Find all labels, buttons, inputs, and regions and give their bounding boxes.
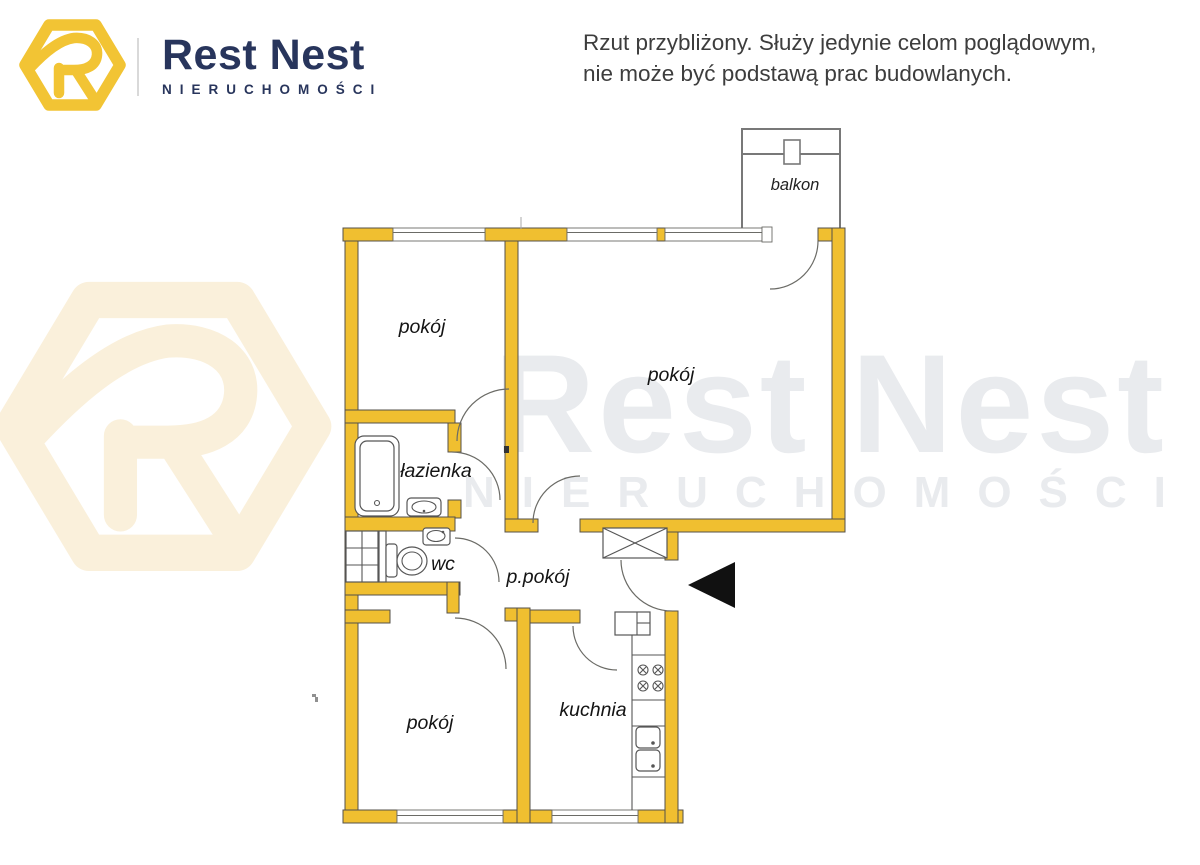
floor-plan-drawing: pokój pokój łazienka wc p.pokój kuchnia … — [0, 0, 1200, 865]
restnest-logo-icon — [0, 0, 160, 130]
bathtub-icon — [355, 436, 399, 516]
room-labels: pokój pokój łazienka wc p.pokój kuchnia … — [398, 176, 820, 734]
kitchen-counter — [632, 635, 665, 810]
wardrobe-icon — [603, 528, 667, 558]
disclaimer-text: Rzut przybliżony. Służy jedynie celom po… — [583, 27, 1193, 89]
bathroom-sink-icon — [407, 498, 441, 516]
room-label-hallway: p.pokój — [506, 566, 571, 588]
kitchen-sink-icon — [636, 727, 660, 771]
stove-icon — [638, 665, 663, 691]
room-label-kitchen: kuchnia — [559, 699, 626, 721]
room-label-balcony: balkon — [771, 176, 820, 194]
fridge-icon — [615, 612, 650, 635]
wc-sink-icon — [423, 528, 450, 545]
toilet-icon — [386, 544, 427, 577]
entrance-arrow-icon — [688, 562, 735, 608]
room-label-living: pokój — [647, 364, 695, 386]
header-divider — [137, 38, 139, 96]
disclaimer-line-1: Rzut przybliżony. Służy jedynie celom po… — [583, 27, 1193, 58]
room-label-bottom-left: pokój — [406, 712, 454, 734]
room-label-bathroom: łazienka — [400, 460, 472, 482]
room-label-wc: wc — [431, 553, 455, 575]
brand-subtitle: NIERUCHOMOŚCI — [162, 82, 382, 97]
disclaimer-line-2: nie może być podstawą prac budowlanych. — [583, 58, 1193, 89]
floor-plan-page: Rest Nest NIERUCHOMOŚCI — [0, 0, 1200, 865]
brand-block: Rest Nest NIERUCHOMOŚCI — [162, 34, 382, 97]
brand-name: Rest Nest — [162, 34, 382, 77]
washer-cabinet-icon — [346, 531, 386, 582]
room-label-top-left: pokój — [398, 316, 446, 338]
